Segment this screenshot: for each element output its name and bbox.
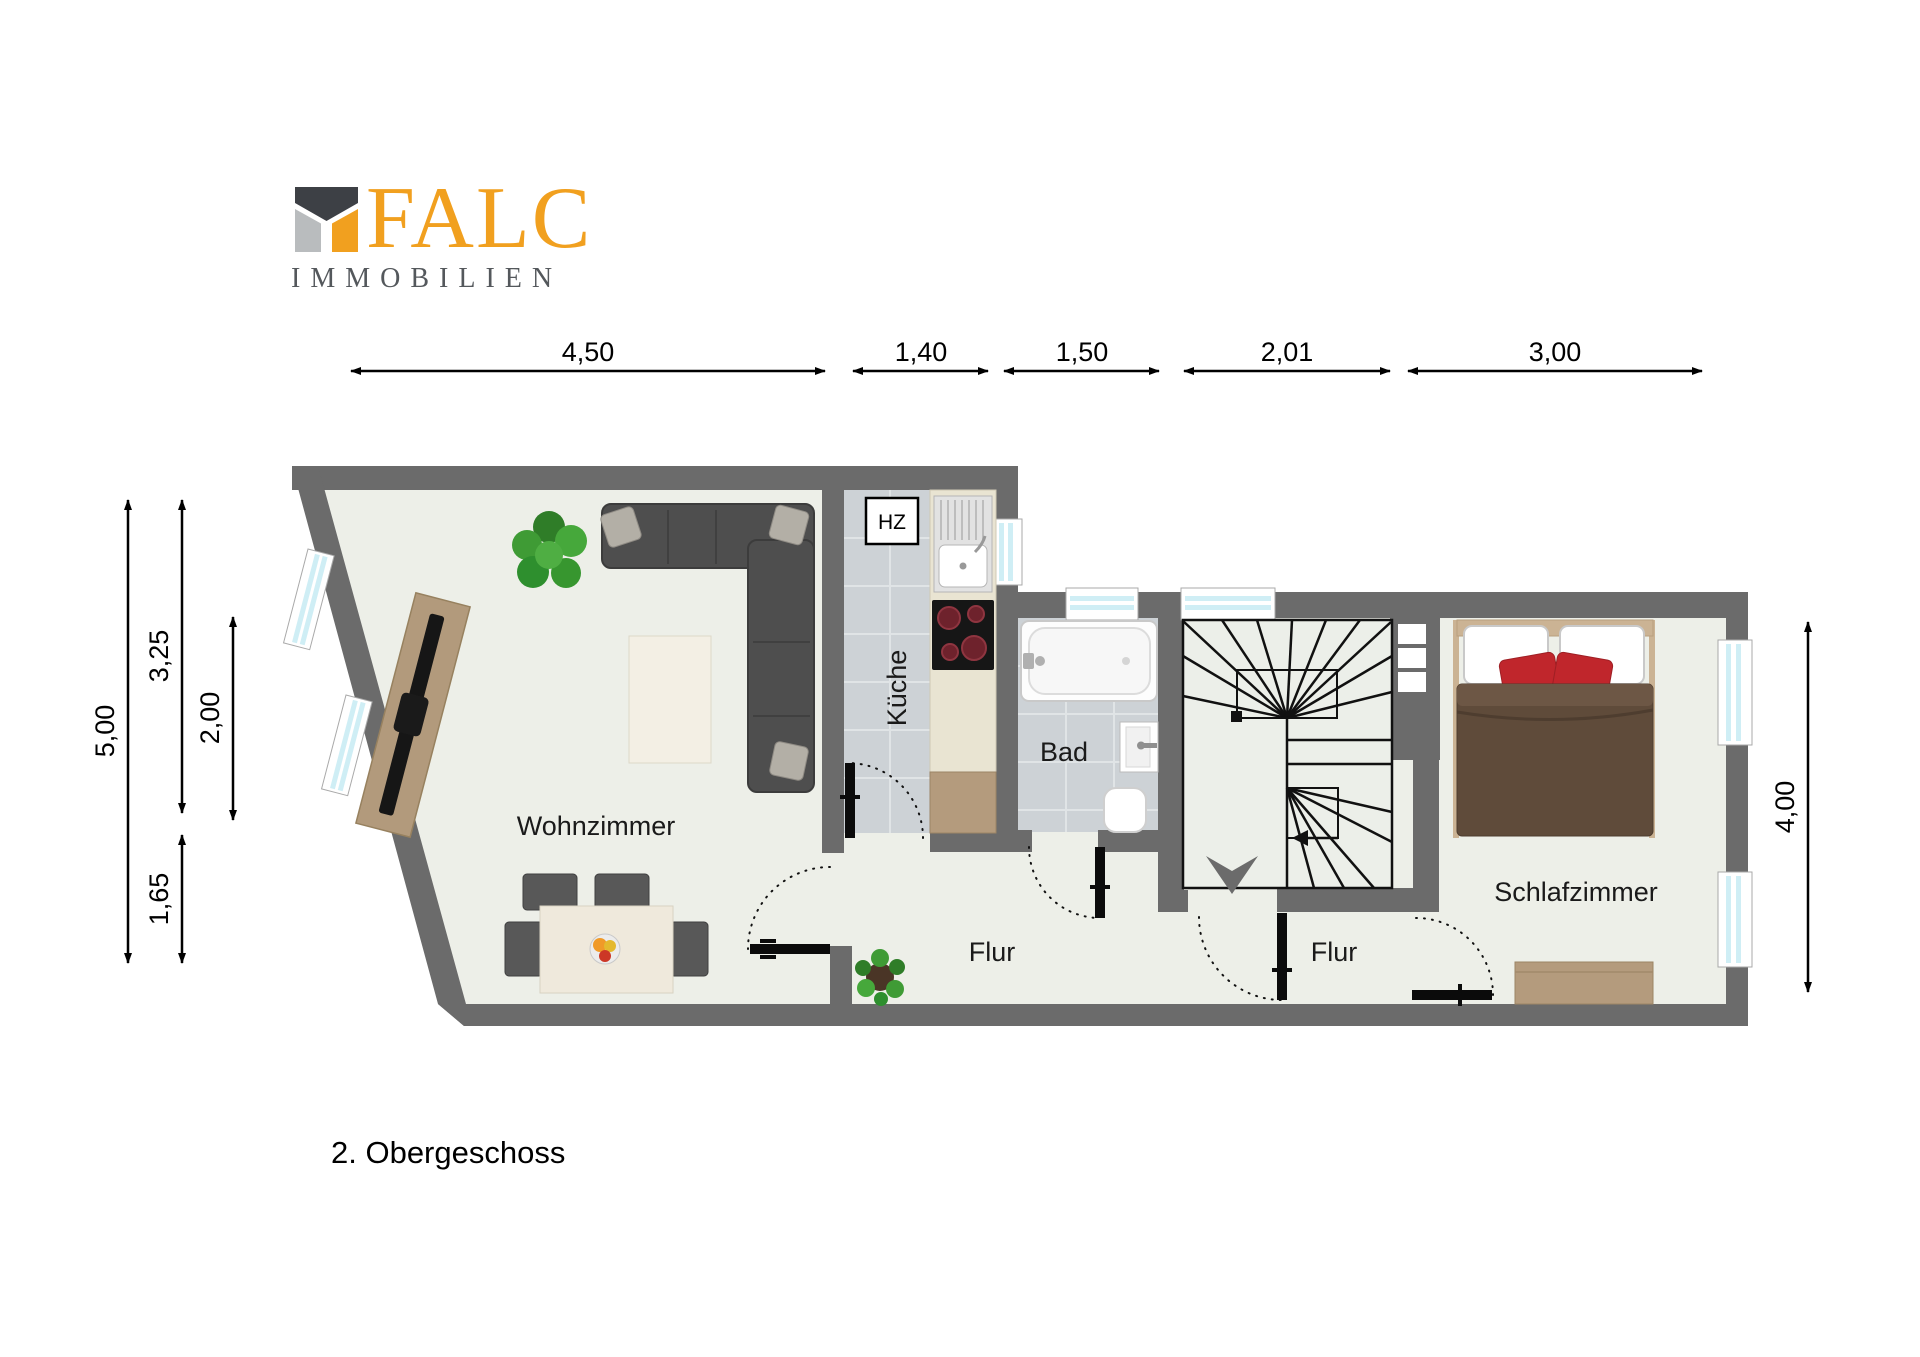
chair [595,874,649,910]
window-living-lower [322,695,373,796]
duvet [1457,684,1653,836]
dresser [1515,962,1653,1004]
counter-wood-end [930,772,996,833]
chair [670,922,708,976]
wall-bath-stair-foot [1160,890,1188,912]
dim-top-1: 4,50 [562,337,615,367]
logo-text: FALC [366,170,592,267]
dim-left-2: 3,25 [144,630,174,683]
wall-bath-stair [1158,592,1184,912]
wall-stairs-bottom [1277,888,1415,912]
wall-living-hall-stub [830,946,852,1004]
dim-top-3: 1,50 [1056,337,1109,367]
window-bedroom-upper [1718,640,1752,745]
chair [523,874,577,910]
dim-top-4: 2,01 [1261,337,1314,367]
window-living-upper [284,549,335,650]
window-bedroom-lower [1718,872,1752,967]
heating-label: HZ [878,511,906,534]
bathtub-icon [1021,621,1157,701]
dim-right-1: 4,00 [1770,781,1800,834]
floor-title: 2. Obergeschoss [331,1135,565,1170]
wall-bath-bottom-left [1018,830,1032,852]
label-hall-right: Flur [1311,937,1358,967]
stair-walkline-start [1231,711,1242,722]
label-bath: Bad [1040,737,1088,767]
company-logo: FALC IMMOBILIEN [291,170,592,294]
logo-subtitle: IMMOBILIEN [291,263,562,294]
dim-top-2: 1,40 [895,337,948,367]
dim-left-3: 2,00 [195,692,225,745]
dim-left-1: 5,00 [90,705,120,758]
floor-plan-page: FALC IMMOBILIEN [0,0,1920,1357]
chimney-niche [1398,624,1426,644]
label-bedroom: Schlafzimmer [1494,877,1658,907]
kitchen-sink-icon [934,496,992,592]
label-living-room: Wohnzimmer [517,811,676,841]
chimney-niche [1398,672,1426,692]
fruit-bowl-icon [590,934,620,964]
toilet-icon [1104,788,1146,832]
dim-top-5: 3,00 [1529,337,1582,367]
cooktop-icon [932,600,994,670]
logo-mark-icon [295,187,358,252]
wall-bath-bottom-right [1098,830,1160,852]
wall-bottom [438,1004,1748,1026]
rug [629,636,711,763]
staircase [1183,620,1392,894]
label-kitchen: Küche [882,650,912,727]
window-bath [1066,588,1138,620]
bath-sink-icon [1120,722,1158,772]
chimney-niche [1398,648,1426,668]
label-hall-left: Flur [969,937,1016,967]
wall-top-left-block [292,466,1018,490]
chair [505,922,543,976]
dim-left-4: 1,65 [144,873,174,926]
heating-box: HZ [866,498,918,544]
window-stairwell [1181,588,1275,620]
sofa-pillow [769,741,809,781]
